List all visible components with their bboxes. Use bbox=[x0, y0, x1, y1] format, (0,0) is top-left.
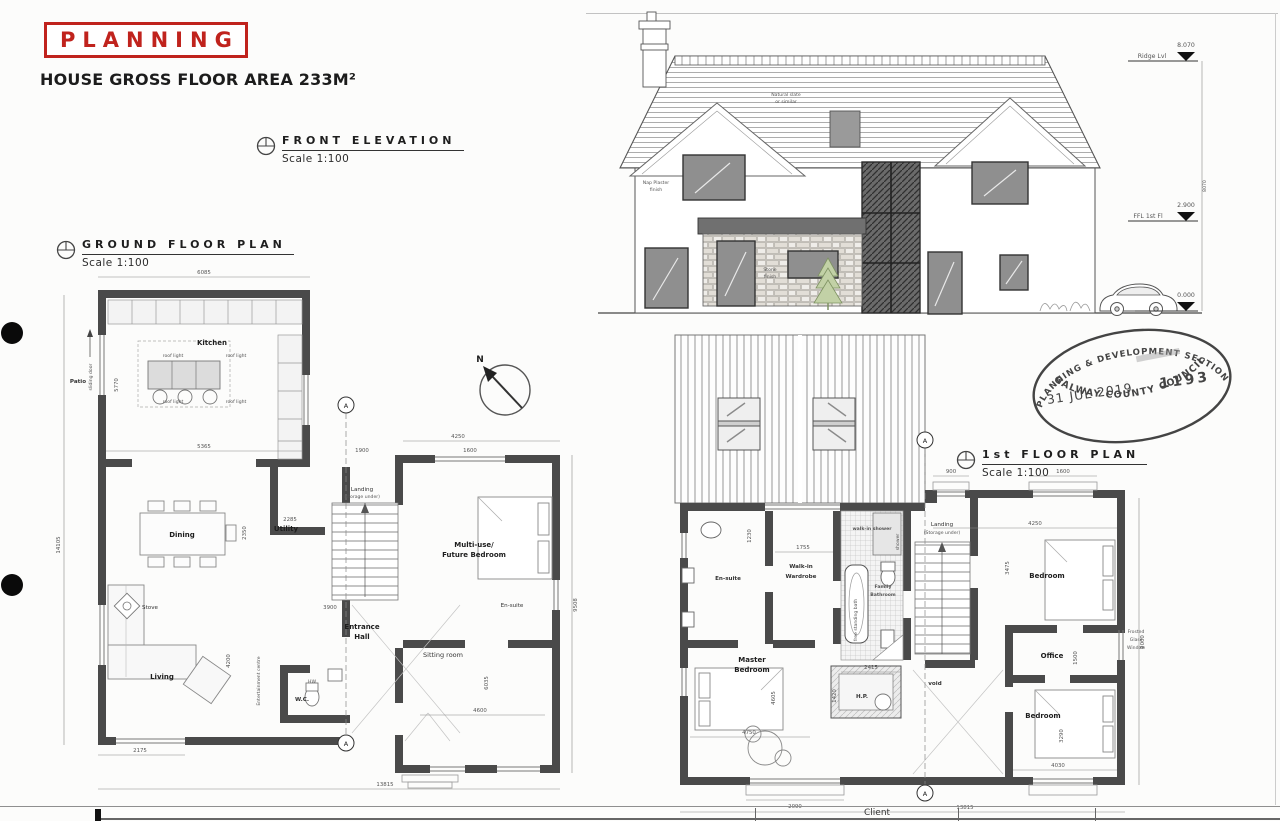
svg-text:4600: 4600 bbox=[473, 708, 487, 714]
room-label-landing: Landing bbox=[351, 487, 374, 493]
front-elevation-scale: Scale 1:100 bbox=[282, 153, 464, 165]
svg-text:6035: 6035 bbox=[484, 676, 490, 690]
section-bubble-icon bbox=[256, 136, 276, 156]
svg-text:or similar: or similar bbox=[775, 99, 797, 105]
room-label-entrance-hall: Entrance bbox=[344, 623, 379, 631]
room-label-shower: walk-in shower bbox=[852, 526, 892, 532]
label-ent-centre: Entertainment centre bbox=[256, 656, 262, 705]
sheet-border-right bbox=[1275, 13, 1276, 805]
ffl-label: FFL 1st Fl bbox=[1133, 213, 1163, 220]
gf-bed bbox=[478, 497, 552, 579]
svg-text:2415: 2415 bbox=[864, 665, 878, 671]
svg-text:9000: 9000 bbox=[1140, 635, 1146, 649]
label-sliding-door: sliding door bbox=[88, 363, 94, 390]
svg-text:4250: 4250 bbox=[1028, 521, 1042, 527]
titleblock-top-line bbox=[0, 806, 1280, 807]
titleblock-divider bbox=[1095, 808, 1096, 821]
svg-text:1500: 1500 bbox=[1073, 651, 1079, 665]
titleblock-client-label: Client bbox=[864, 808, 890, 818]
svg-text:A: A bbox=[344, 402, 349, 410]
ground-level-value: 0.000 bbox=[1177, 292, 1195, 299]
room-label-wardrobe: Walk-in bbox=[789, 564, 813, 570]
svg-text:2350: 2350 bbox=[242, 526, 248, 540]
ff-void-braces bbox=[913, 670, 1003, 774]
svg-text:4250: 4250 bbox=[451, 434, 465, 440]
svg-text:6085: 6085 bbox=[197, 270, 211, 276]
svg-text:Hall: Hall bbox=[354, 633, 369, 641]
svg-text:2285: 2285 bbox=[283, 517, 297, 523]
roof-window bbox=[830, 111, 860, 147]
gf-entrance-steps bbox=[402, 775, 458, 782]
room-label-hp: H.P. bbox=[856, 694, 868, 700]
svg-text:9508: 9508 bbox=[573, 598, 579, 612]
svg-text:14105: 14105 bbox=[56, 536, 62, 553]
svg-text:1900: 1900 bbox=[355, 448, 369, 454]
svg-text:Wardrobe: Wardrobe bbox=[786, 574, 817, 580]
room-label-utility: Utility bbox=[274, 525, 299, 533]
room-label-bedroom-bottom: Bedroom bbox=[1025, 712, 1060, 720]
label-roof-light-4: roof light bbox=[226, 399, 247, 405]
svg-text:A: A bbox=[923, 790, 928, 798]
room-label-bathroom: Family bbox=[875, 584, 892, 590]
svg-text:1600: 1600 bbox=[463, 448, 477, 454]
council-stamp: PLANNING & DEVELOPMENT SECTION GALWAY CO… bbox=[1022, 320, 1242, 452]
room-label-wc: W.C. bbox=[295, 697, 309, 703]
svg-text:4605: 4605 bbox=[771, 691, 777, 705]
room-label-dining: Dining bbox=[169, 531, 195, 539]
svg-text:finish: finish bbox=[650, 187, 662, 193]
label-stove: Stove bbox=[142, 605, 158, 611]
titleblock-inner-line bbox=[101, 818, 1280, 820]
svg-text:3290: 3290 bbox=[1059, 729, 1065, 743]
label-hw: HW bbox=[308, 679, 316, 685]
section-bubble-icon bbox=[956, 450, 976, 470]
stone-porch: Stone finish bbox=[698, 218, 866, 310]
svg-text:2090: 2090 bbox=[788, 804, 802, 810]
titleblock-divider bbox=[755, 808, 756, 821]
svg-text:4030: 4030 bbox=[1051, 763, 1065, 769]
gross-floor-area-title: HOUSE GROSS FLOOR AREA 233M² bbox=[40, 70, 356, 89]
svg-text:5770: 5770 bbox=[114, 378, 120, 392]
ff-bathroom bbox=[841, 511, 903, 660]
ff-stairs bbox=[915, 542, 970, 654]
first-floor-scale: Scale 1:100 bbox=[982, 467, 1147, 479]
room-label-sitting: Sitting room bbox=[423, 651, 463, 659]
svg-text:A: A bbox=[344, 740, 349, 748]
hole-punch-top bbox=[1, 322, 23, 344]
gf-stairs bbox=[332, 503, 398, 600]
stamp-number: 1193 bbox=[1158, 369, 1211, 392]
label-patio: Patio bbox=[70, 379, 86, 385]
roof-note: Natural slate bbox=[771, 92, 801, 98]
front-elevation-label: FRONT ELEVATION bbox=[282, 134, 464, 151]
ground-floor-plan-drawing: A A N Kitchen Dining Utility Living Entr… bbox=[40, 245, 640, 815]
svg-text:(Storage under): (Storage under) bbox=[924, 530, 961, 536]
svg-text:4750: 4750 bbox=[742, 730, 756, 736]
north-arrow-icon: N bbox=[476, 355, 530, 415]
ff-hot-press bbox=[831, 666, 901, 718]
room-label-landing: Landing bbox=[931, 522, 954, 528]
planning-stamp-label: PLANNING bbox=[60, 28, 239, 52]
room-label-ensuite: En-suite bbox=[501, 603, 524, 609]
svg-text:4200: 4200 bbox=[226, 654, 232, 668]
label-bath-side: free standing bath bbox=[853, 599, 859, 641]
ridge-level-value: 8.070 bbox=[1177, 42, 1195, 49]
hole-punch-bottom bbox=[1, 574, 23, 596]
label-roof-light-2: roof light bbox=[226, 353, 247, 359]
gf-kitchen-island bbox=[138, 341, 230, 407]
label-shower-side: shower bbox=[895, 534, 901, 551]
room-label-master: Master bbox=[738, 656, 766, 664]
svg-text:Bedroom: Bedroom bbox=[734, 666, 769, 674]
svg-text:(storage under): (storage under) bbox=[344, 494, 380, 500]
label-void: void bbox=[928, 681, 941, 687]
planning-stamp: PLANNING bbox=[44, 22, 248, 58]
stone-note: Stone bbox=[763, 267, 776, 273]
svg-text:1230: 1230 bbox=[747, 529, 753, 543]
svg-text:finish: finish bbox=[764, 274, 776, 280]
svg-text:2175: 2175 bbox=[133, 748, 147, 754]
room-label-living: Living bbox=[150, 673, 174, 681]
svg-text:1755: 1755 bbox=[796, 545, 810, 551]
room-label-kitchen: Kitchen bbox=[197, 339, 227, 347]
ff-roof-below bbox=[675, 335, 925, 503]
ridge-level-label: Ridge Lvl bbox=[1138, 53, 1167, 60]
level-markers: 8.070 Ridge Lvl 2.900 FFL 1st Fl 0.000 8… bbox=[1128, 42, 1208, 311]
glazed-column bbox=[862, 162, 920, 313]
svg-text:A: A bbox=[923, 437, 928, 445]
svg-text:5365: 5365 bbox=[197, 444, 211, 450]
label-frosted-window: Frosted bbox=[1128, 629, 1145, 635]
room-label-office: Office bbox=[1041, 652, 1064, 660]
north-label: N bbox=[476, 355, 484, 365]
ffl-value: 2.900 bbox=[1177, 202, 1195, 209]
front-elevation-drawing: Natural slate or similar Nap Plaster fin… bbox=[590, 8, 1210, 323]
svg-text:1420: 1420 bbox=[832, 689, 838, 703]
room-label-ensuite: En-suite bbox=[715, 576, 741, 582]
svg-text:Future Bedroom: Future Bedroom bbox=[442, 551, 506, 559]
svg-text:3475: 3475 bbox=[1005, 561, 1011, 575]
planning-drawing-sheet: PLANNING HOUSE GROSS FLOOR AREA 233M² FR… bbox=[0, 0, 1280, 821]
titleblock-divider bbox=[958, 808, 959, 821]
gf-wc-fixtures bbox=[305, 669, 342, 706]
label-roof-light-3: roof light bbox=[163, 399, 184, 405]
svg-text:3900: 3900 bbox=[323, 605, 337, 611]
ff-dimensions: 900 1600 4250 3475 1755 1230 1500 3290 4… bbox=[680, 469, 1146, 812]
room-label-multiuse: Multi-use/ bbox=[454, 541, 494, 549]
chimney bbox=[639, 12, 670, 87]
front-elevation-title: FRONT ELEVATION Scale 1:100 bbox=[256, 134, 464, 165]
svg-text:13815: 13815 bbox=[376, 782, 393, 788]
first-floor-title: 1st FLOOR PLAN Scale 1:100 bbox=[956, 448, 1147, 479]
room-label-bedroom-top: Bedroom bbox=[1029, 572, 1064, 580]
wall-note: Nap Plaster bbox=[643, 180, 670, 186]
label-roof-light-1: roof light bbox=[163, 353, 184, 359]
svg-text:Bathroom: Bathroom bbox=[870, 592, 896, 598]
overall-height-dim: 8070 bbox=[1202, 180, 1208, 192]
